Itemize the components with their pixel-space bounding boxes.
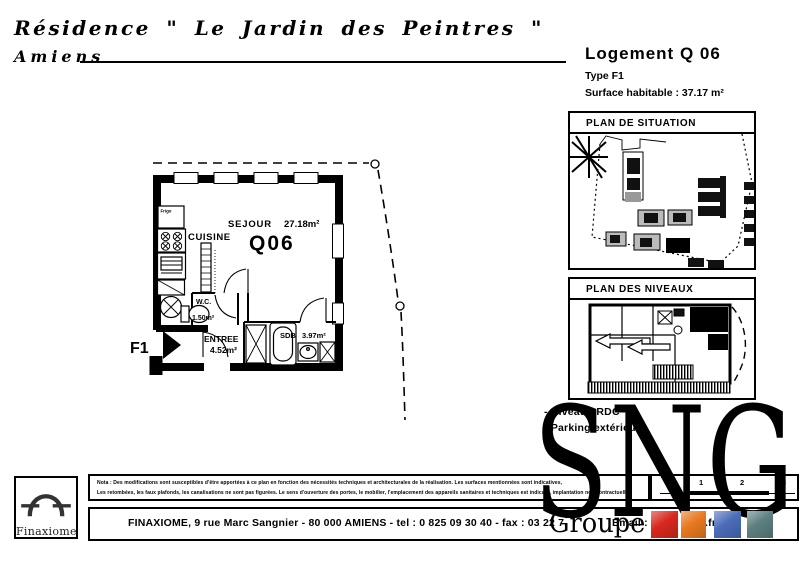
unit-type: Type F1	[585, 70, 624, 82]
unit-code-label: Q06	[249, 232, 295, 255]
buildings	[606, 152, 754, 268]
room-area-entree: 4.52m²	[210, 345, 237, 355]
hall-door-opening	[204, 361, 230, 373]
footer-address: FINAXIOME, 9 rue Marc Sangnier - 80 000 …	[128, 517, 564, 529]
unit-surface: Surface habitable : 37.17 m²	[585, 87, 724, 99]
highlighted-building	[666, 238, 690, 253]
niveaux-panel-title: PLAN DES NIVEAUX	[570, 279, 754, 300]
wall-block	[150, 356, 163, 375]
city-label: Amiens	[14, 47, 104, 66]
brand-square-orange	[681, 511, 706, 538]
room-label-sejour: SEJOUR	[228, 219, 272, 230]
survey-point	[396, 302, 404, 310]
finaxiome-arch-icon	[17, 480, 75, 522]
room-area-sdb: 3.97m²	[302, 331, 326, 340]
floorplan-drawing: SEJOUR 27.18m² Q06 CUISINE Frigo W.C. 1.…	[112, 132, 417, 427]
finaxiome-logo: Finaxiome	[14, 476, 78, 539]
room-area-sejour: 27.18m²	[284, 219, 319, 230]
brand-square-teal	[747, 511, 773, 538]
room-label-wc: W.C.	[196, 299, 211, 306]
brand-square-red	[651, 511, 678, 538]
room-area-wc: 1.50m²	[192, 315, 215, 322]
compass-icon	[570, 136, 608, 178]
entry-door-opening	[151, 330, 162, 356]
room-label-cuisine: CUISINE	[188, 232, 231, 243]
survey-point	[371, 160, 379, 168]
residence-title: Résidence " Le Jardin des Peintres "	[14, 16, 544, 40]
brand-square-blue	[714, 511, 741, 538]
facade-dashed	[732, 307, 745, 385]
finaxiome-logo-text: Finaxiome	[16, 525, 76, 538]
title-underline	[80, 61, 566, 63]
roads	[600, 136, 666, 150]
type-marker-label: F1	[130, 340, 149, 357]
situation-panel-title: PLAN DE SITUATION	[570, 113, 754, 134]
situation-map	[570, 134, 754, 268]
toilet-tank	[181, 306, 189, 322]
room-label-entree: ENTREE	[204, 334, 239, 344]
unit-title: Logement Q 06	[585, 44, 721, 64]
room-label-sdb: SDB	[280, 331, 296, 340]
sng-groupe-label: Groupe	[549, 510, 645, 537]
plan-sheet: Résidence " Le Jardin des Peintres " Ami…	[0, 0, 800, 568]
fridge-label: Frigo	[161, 209, 172, 214]
